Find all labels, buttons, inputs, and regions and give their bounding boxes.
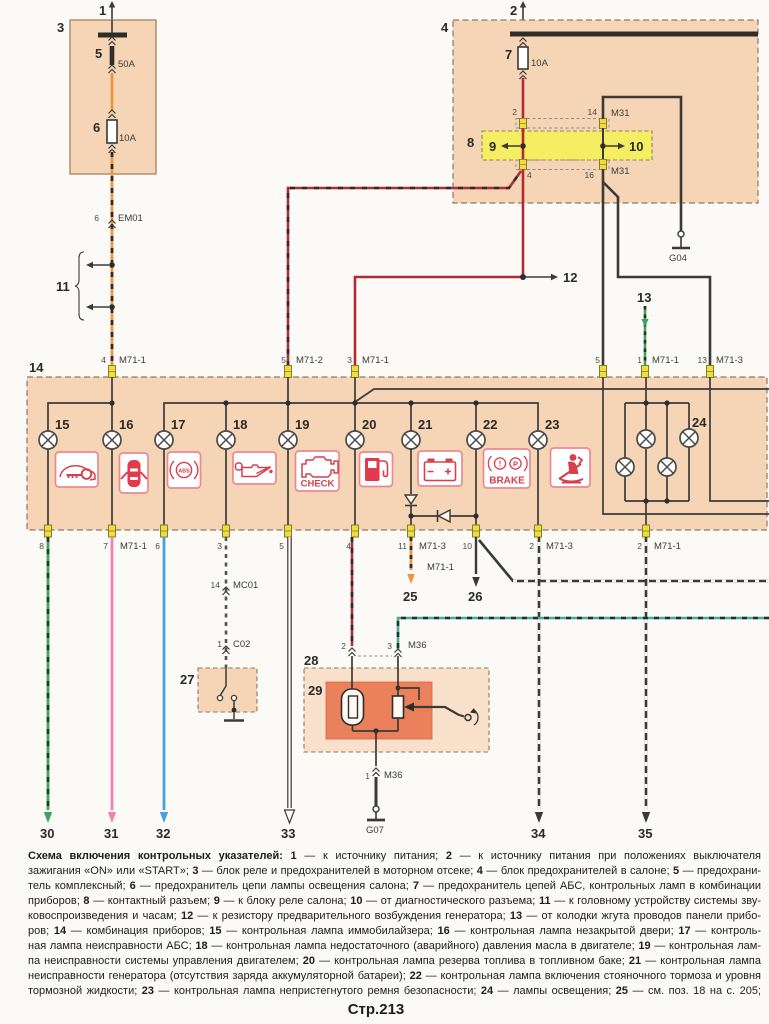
svg-text:24: 24 (692, 415, 707, 430)
svg-text:EM01: EM01 (118, 213, 143, 224)
svg-text:30: 30 (40, 826, 54, 841)
svg-text:14: 14 (211, 580, 221, 590)
svg-text:6: 6 (155, 541, 160, 551)
svg-text:9: 9 (489, 139, 496, 154)
svg-text:M71-1: M71-1 (654, 541, 681, 552)
svg-text:4: 4 (527, 170, 532, 180)
svg-text:C02: C02 (233, 639, 250, 650)
svg-text:M71-3: M71-3 (419, 541, 446, 552)
svg-text:14: 14 (29, 360, 44, 375)
svg-text:2: 2 (341, 641, 346, 651)
svg-text:34: 34 (531, 826, 546, 841)
svg-text:P: P (513, 460, 518, 469)
svg-text:ABS: ABS (178, 469, 190, 475)
svg-text:16: 16 (119, 417, 133, 432)
svg-text:2: 2 (637, 541, 642, 551)
svg-text:31: 31 (104, 826, 118, 841)
svg-text:3: 3 (57, 20, 64, 35)
svg-text:17: 17 (171, 417, 185, 432)
svg-text:4: 4 (101, 355, 106, 365)
svg-text:7: 7 (103, 541, 108, 551)
svg-text:8: 8 (39, 541, 44, 551)
svg-text:G07: G07 (366, 825, 384, 836)
svg-text:14: 14 (588, 107, 598, 117)
svg-text:4: 4 (346, 541, 351, 551)
svg-text:11: 11 (56, 279, 70, 294)
svg-text:G04: G04 (669, 253, 687, 264)
svg-text:1: 1 (637, 355, 642, 365)
svg-text:M31: M31 (611, 166, 629, 177)
svg-text:1: 1 (217, 639, 222, 649)
svg-text:M36: M36 (384, 770, 402, 781)
svg-text:2: 2 (529, 541, 534, 551)
svg-text:28: 28 (304, 653, 318, 668)
svg-text:BRAKE: BRAKE (489, 476, 525, 487)
svg-text:M71-1: M71-1 (427, 562, 454, 573)
svg-text:6: 6 (94, 213, 99, 223)
svg-text:10A: 10A (119, 133, 137, 144)
svg-text:35: 35 (638, 826, 652, 841)
svg-text:22: 22 (483, 417, 497, 432)
svg-text:29: 29 (308, 683, 322, 698)
svg-text:26: 26 (468, 589, 482, 604)
svg-text:16: 16 (585, 170, 595, 180)
svg-text:20: 20 (362, 417, 376, 432)
svg-text:3: 3 (217, 541, 222, 551)
svg-text:5: 5 (595, 355, 600, 365)
svg-text:M71-1: M71-1 (119, 355, 146, 366)
svg-text:18: 18 (233, 417, 247, 432)
svg-text:2: 2 (510, 3, 517, 18)
svg-text:5: 5 (281, 355, 286, 365)
svg-text:6: 6 (93, 120, 100, 135)
svg-text:33: 33 (281, 826, 295, 841)
svg-text:10: 10 (629, 139, 643, 154)
svg-text:M71-2: M71-2 (296, 355, 323, 366)
svg-text:MC01: MC01 (233, 580, 258, 591)
svg-text:10A: 10A (531, 58, 549, 69)
svg-text:8: 8 (467, 135, 474, 150)
svg-text:4: 4 (441, 20, 449, 35)
svg-text:M71-1: M71-1 (652, 355, 679, 366)
svg-text:32: 32 (156, 826, 170, 841)
svg-text:13: 13 (637, 290, 651, 305)
svg-text:CHECK: CHECK (301, 479, 335, 490)
svg-text:15: 15 (55, 417, 69, 432)
svg-text:21: 21 (418, 417, 432, 432)
svg-text:5: 5 (95, 46, 102, 61)
svg-text:M36: M36 (408, 640, 426, 651)
svg-text:5: 5 (279, 541, 284, 551)
svg-text:M71-3: M71-3 (716, 355, 743, 366)
svg-text:M71-1: M71-1 (362, 355, 389, 366)
svg-text:M31: M31 (611, 108, 629, 119)
svg-text:1: 1 (365, 771, 370, 781)
svg-text:7: 7 (505, 47, 512, 62)
svg-text:19: 19 (295, 417, 309, 432)
svg-text:2: 2 (512, 107, 517, 117)
svg-text:13: 13 (698, 355, 708, 365)
svg-text:1: 1 (99, 3, 106, 18)
svg-text:25: 25 (403, 589, 417, 604)
svg-text:23: 23 (545, 417, 559, 432)
svg-text:3: 3 (387, 641, 392, 651)
svg-text:M71-1: M71-1 (120, 541, 147, 552)
svg-text:27: 27 (180, 672, 194, 687)
svg-text:!: ! (499, 460, 502, 469)
svg-text:3: 3 (347, 355, 352, 365)
svg-text:50A: 50A (118, 59, 136, 70)
svg-text:11: 11 (398, 541, 407, 551)
svg-text:10: 10 (463, 541, 473, 551)
svg-text:M71-3: M71-3 (546, 541, 573, 552)
svg-text:12: 12 (563, 270, 577, 285)
